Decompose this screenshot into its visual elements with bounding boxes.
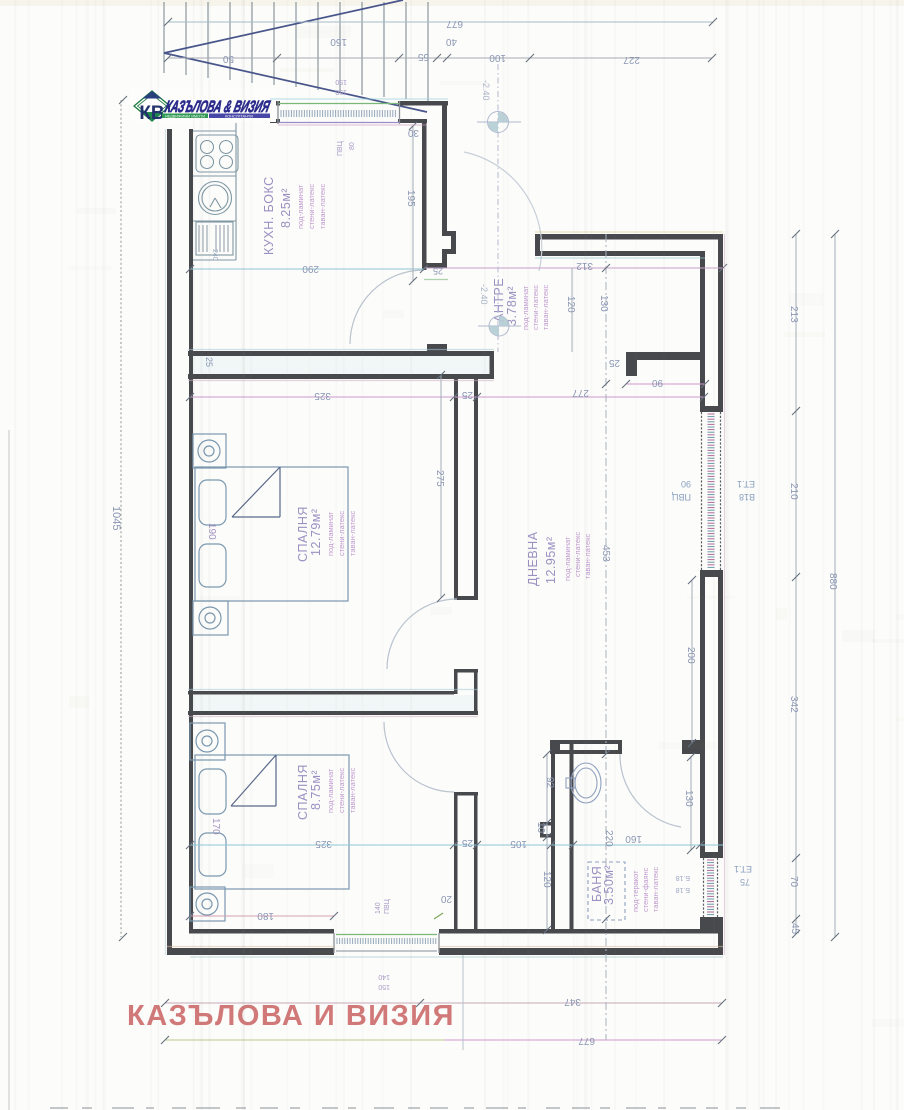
svg-text:ПВЦ: ПВЦ bbox=[384, 898, 391, 914]
svg-text:СПАЛНЯ: СПАЛНЯ bbox=[296, 506, 310, 562]
svg-text:25: 25 bbox=[461, 389, 473, 400]
svg-text:227: 227 bbox=[623, 54, 640, 65]
svg-text:453: 453 bbox=[600, 545, 611, 562]
svg-text:таван-латекс: таван-латекс bbox=[348, 767, 357, 813]
svg-text:10: 10 bbox=[535, 822, 546, 834]
svg-text:190: 190 bbox=[206, 523, 217, 540]
svg-text:СПАЛНЯ: СПАЛНЯ bbox=[296, 764, 310, 820]
svg-text:105: 105 bbox=[510, 838, 527, 849]
svg-text:140: 140 bbox=[378, 973, 390, 980]
svg-text:347: 347 bbox=[564, 996, 581, 1007]
svg-text:КАЗЪЛОВА И ВИЗИЯ: КАЗЪЛОВА И ВИЗИЯ bbox=[127, 1000, 455, 1032]
svg-text:стени-латекс: стени-латекс bbox=[531, 285, 540, 330]
svg-text:3.50м²: 3.50м² bbox=[602, 865, 616, 905]
svg-text:170: 170 bbox=[210, 818, 221, 835]
svg-text:таван-латекс: таван-латекс bbox=[541, 284, 550, 330]
svg-text:880: 880 bbox=[827, 573, 838, 590]
svg-text:140: 140 bbox=[375, 902, 382, 914]
svg-text:220: 220 bbox=[603, 830, 614, 847]
svg-text:160: 160 bbox=[625, 833, 642, 844]
svg-text:1045: 1045 bbox=[110, 506, 122, 530]
svg-text:12.79м²: 12.79м² bbox=[309, 508, 323, 556]
svg-text:120: 120 bbox=[541, 871, 552, 888]
svg-text:под-ламинат: под-ламинат bbox=[326, 768, 335, 813]
svg-text:180: 180 bbox=[257, 910, 274, 921]
svg-text:8.75м²: 8.75м² bbox=[309, 770, 323, 810]
svg-text:130: 130 bbox=[683, 790, 694, 807]
svg-text:таван-латекс: таван-латекс bbox=[318, 183, 327, 229]
svg-text:таван-латекс: таван-латекс bbox=[348, 510, 357, 556]
svg-text:677: 677 bbox=[446, 18, 463, 29]
svg-text:стени-латекс: стени-латекс bbox=[307, 184, 316, 229]
svg-text:50: 50 bbox=[222, 53, 234, 64]
svg-text:под-ламинат: под-ламинат bbox=[326, 511, 335, 556]
svg-text:200: 200 bbox=[685, 647, 696, 664]
svg-text:КОНСУЛТАНТИ: КОНСУЛТАНТИ bbox=[225, 115, 253, 119]
svg-text:80: 80 bbox=[349, 142, 356, 150]
svg-text:8.25м²: 8.25м² bbox=[279, 188, 293, 228]
svg-text:КУХН. БОКС: КУХН. БОКС bbox=[262, 176, 276, 255]
svg-text:стени-фаянс: стени-фаянс bbox=[641, 867, 650, 912]
svg-text:ЕТ.1: ЕТ.1 bbox=[737, 479, 755, 489]
svg-text:325: 325 bbox=[315, 838, 332, 849]
svg-text:40: 40 bbox=[445, 36, 457, 47]
svg-text:ЕТ.1: ЕТ.1 bbox=[734, 864, 752, 874]
svg-text:30: 30 bbox=[407, 127, 419, 138]
svg-text:90: 90 bbox=[651, 377, 663, 388]
svg-text:130: 130 bbox=[598, 295, 609, 312]
svg-text:55: 55 bbox=[417, 51, 429, 62]
svg-text:25: 25 bbox=[461, 837, 473, 848]
svg-text:150: 150 bbox=[378, 983, 390, 990]
svg-text:45: 45 bbox=[789, 923, 800, 935]
svg-text:под-ламинат: под-ламинат bbox=[296, 184, 305, 229]
svg-text:ПВЦ: ПВЦ bbox=[672, 492, 691, 502]
svg-text:Б.18: Б.18 bbox=[676, 874, 690, 881]
svg-text:325: 325 bbox=[314, 390, 331, 401]
svg-text:таван-латекс: таван-латекс bbox=[651, 866, 660, 912]
svg-text:20: 20 bbox=[440, 893, 452, 904]
svg-text:240: 240 bbox=[211, 249, 218, 261]
svg-text:275: 275 bbox=[434, 470, 445, 487]
svg-text:90: 90 bbox=[681, 479, 691, 489]
svg-text:Б.18: Б.18 bbox=[676, 886, 690, 893]
svg-text:25: 25 bbox=[433, 266, 443, 276]
svg-text:92: 92 bbox=[544, 777, 555, 789]
svg-text:75: 75 bbox=[740, 877, 750, 887]
